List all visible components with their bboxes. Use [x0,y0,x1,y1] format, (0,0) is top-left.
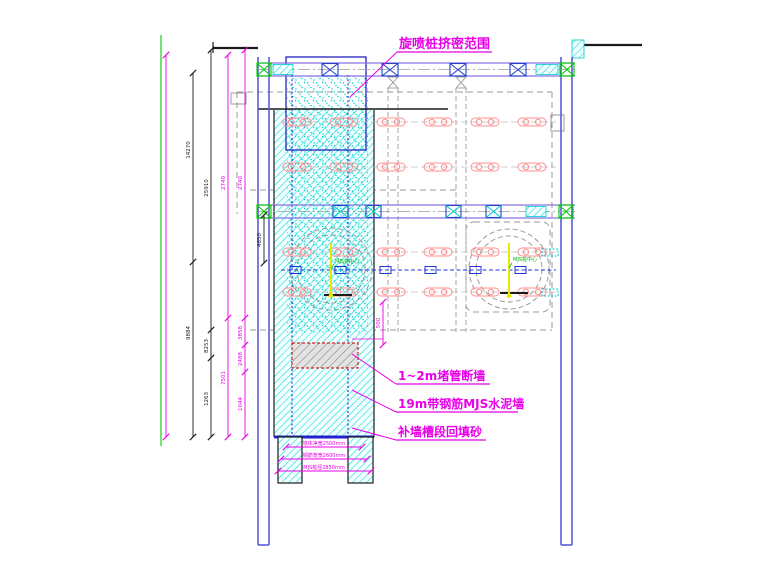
dim-clear-width-text: 墙体净宽2500mm [303,440,346,447]
callout-plug-wall-label: 1~2m堵管断墙 [398,368,485,383]
callout-backfill-label: 补墙槽段回填砂 [397,424,482,439]
dim-text-h: 7501 [221,371,227,385]
dim-cage-width-text: 钢筋笼宽2600mm [303,452,346,459]
dim-pile-dia-text: MJS桩径2850mm [303,464,345,471]
callout-mjs-wall: 19m带钢筋MJS水泥墙 [352,390,524,412]
dim-text-j: 2488 [238,352,244,366]
dim-chain-magenta-e [242,47,248,440]
strut-end-hatch [273,65,293,75]
dim-text-a: 14270 [186,141,192,159]
dim-text-e: 9884 [186,326,192,340]
ground-corner-hatch [572,40,584,58]
dim-text-c: 2740 [221,176,227,190]
pile-center-label-left: MJS桩中心 [335,258,359,265]
ground-line-left [213,42,258,53]
callout-mjs-wall-label: 19m带钢筋MJS水泥墙 [398,396,524,411]
dim-text-d: 2740 [238,176,244,190]
dim-chain-black-c [208,47,214,440]
dim-chain-magenta-a [163,52,169,440]
dim-text-f: 8253 [204,339,210,353]
diaphragm-wall-left [258,57,269,545]
callout-jet-grout: 旋喷桩挤密范围 [350,36,492,97]
dim-chain-black-b [190,70,196,440]
plug-wall-block [292,343,358,368]
strut-level-1 [257,63,575,76]
strut-end-hatch [536,65,558,75]
left-leg-block [278,437,302,483]
dim-text-k: 1044 [238,397,244,411]
dim-text-g: 1263 [204,392,210,406]
top-label: 旋喷桩挤密范围 [398,36,490,52]
right-leg-block [348,437,373,483]
cad-drawing: 墙体净宽2500mm 钢筋笼宽2600mm MJS桩径2850mm 14270 … [0,0,780,587]
pile-center-label-right: MJS桩中心 [513,256,537,263]
diaphragm-wall-right [561,57,572,545]
dim-text-strut-gap: 4850 [257,233,263,247]
strut-end-hatch [526,207,546,217]
dim-text-pit-small: 500 [376,317,382,328]
dim-text-b: 25910 [204,179,210,197]
cad-drawing-canvas: 墙体净宽2500mm 钢筋笼宽2600mm MJS桩径2850mm 14270 … [0,0,780,587]
dim-text-i: 3858 [238,326,244,340]
